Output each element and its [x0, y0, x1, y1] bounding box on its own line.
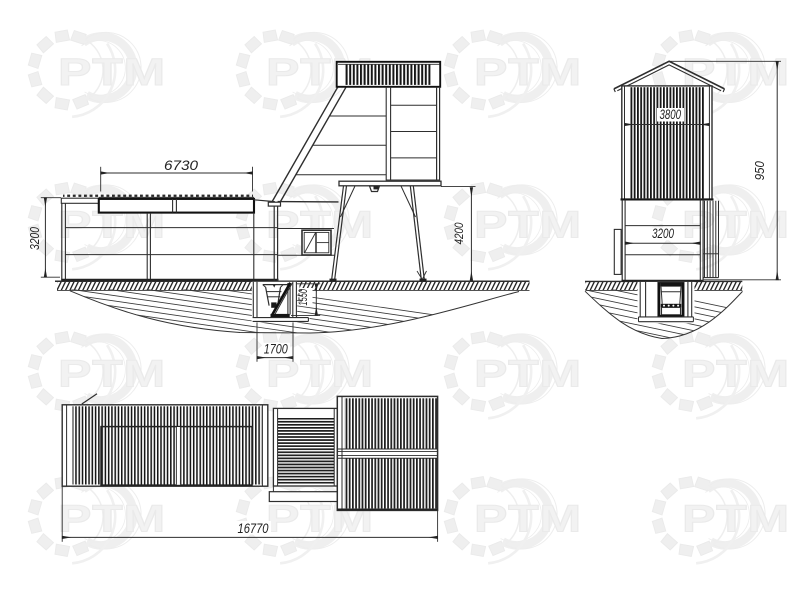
svg-text:3800: 3800: [660, 107, 682, 122]
svg-text:6730: 6730: [164, 158, 199, 173]
svg-text:3200: 3200: [652, 226, 674, 241]
svg-text:1700: 1700: [264, 341, 288, 356]
svg-text:3200: 3200: [27, 226, 42, 250]
svg-text:16770: 16770: [238, 521, 269, 536]
svg-text:1550: 1550: [296, 289, 310, 306]
svg-text:4200: 4200: [452, 222, 466, 244]
svg-text:950: 950: [752, 161, 767, 181]
